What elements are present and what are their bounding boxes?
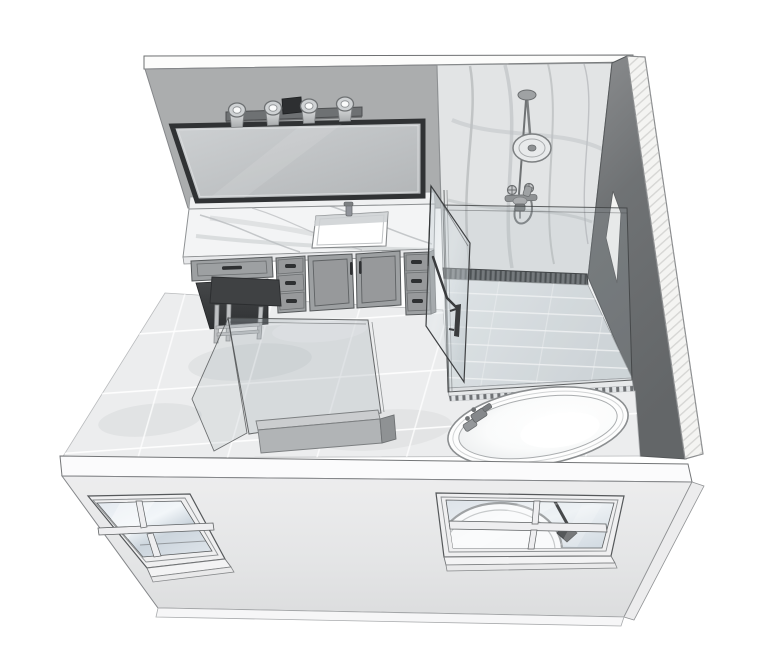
ceiling-escutcheon (518, 90, 536, 100)
rain-head-hub (528, 145, 536, 151)
light-shade-3 (301, 99, 318, 124)
vanity-mirror (172, 121, 423, 201)
drawer-handle (411, 260, 422, 264)
shower-glass-panel (443, 205, 632, 392)
shade-opening (341, 101, 349, 108)
drawer-handle (285, 281, 296, 285)
light-backplate (282, 97, 302, 114)
stool-seat (210, 277, 281, 306)
stool-leg (214, 305, 219, 343)
faucet-spout (344, 202, 353, 206)
door-handle-bar (359, 261, 362, 274)
drawer-handle (412, 299, 423, 303)
toilet-partition (192, 318, 396, 453)
shower-glass (426, 186, 632, 392)
faucet (346, 205, 352, 216)
light-shade-2 (265, 101, 282, 126)
door-panel (313, 259, 349, 306)
3d-viewport[interactable] (0, 0, 768, 647)
drawer-handle (286, 299, 297, 303)
shade-opening (305, 103, 313, 110)
shade-opening (233, 107, 241, 114)
shade-opening (269, 105, 277, 112)
handle-foot (449, 329, 454, 330)
drawer-handle (222, 266, 242, 270)
light-shade-4 (337, 97, 354, 122)
door-handle-bar (350, 262, 353, 275)
drawer-handle (285, 264, 296, 268)
light-shade-1 (229, 103, 246, 128)
front-wall (60, 456, 704, 626)
bathroom-render (0, 0, 768, 647)
partition-pony-wall-side (380, 415, 396, 443)
door-panel (361, 256, 396, 303)
drawer-handle (411, 279, 422, 283)
